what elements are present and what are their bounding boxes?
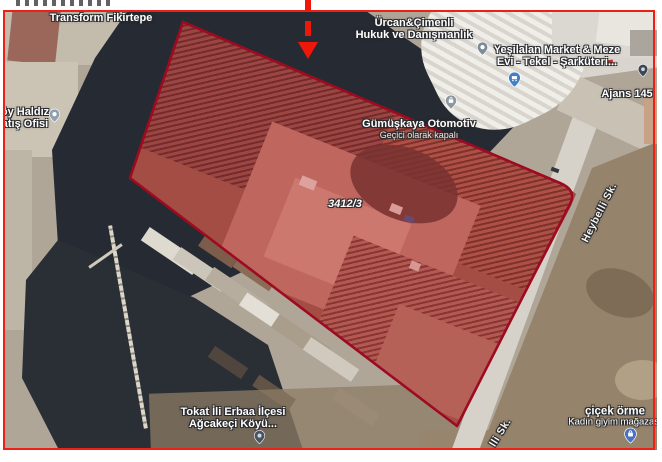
screenshot-stage: Transform Fikirtepe öy Haldız atış Ofisi…	[0, 0, 662, 456]
annotation-arrow-dash	[305, 0, 311, 11]
screenshot-red-frame	[3, 10, 655, 450]
annotation-arrow-dash	[305, 21, 311, 36]
clipped-text-fragment	[16, 0, 112, 6]
annotation-arrow-head-icon	[298, 42, 318, 59]
